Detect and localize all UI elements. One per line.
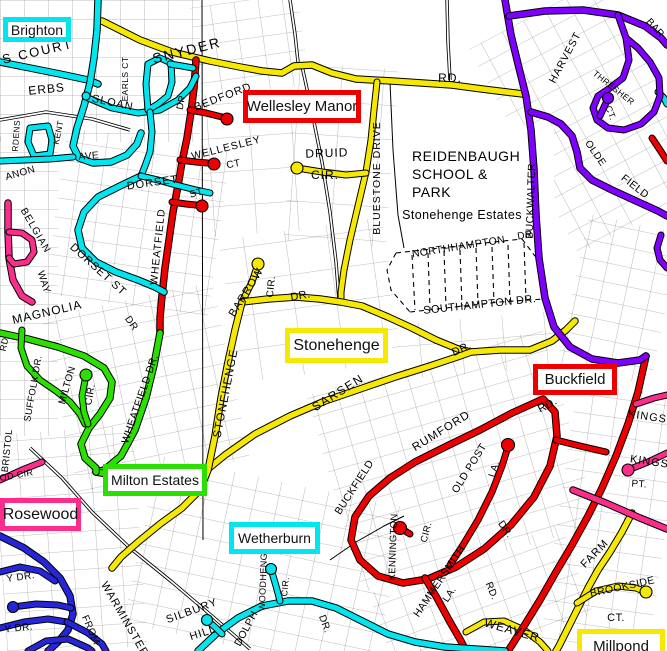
street-label: CT. (607, 612, 625, 624)
neighborhood-name: Brighton (11, 22, 63, 38)
neighborhood-name: Rosewood (3, 506, 79, 524)
unbuilt-road (524, 243, 526, 300)
neighborhood-label-rosewood: Rosewood (0, 498, 81, 531)
neighborhood-name: Millpond (593, 638, 649, 651)
neighborhood-label-brighton: Brighton (3, 17, 71, 42)
neighborhood-name: Wellesley Manor (247, 98, 358, 115)
unbuilt-road (508, 245, 510, 302)
street-label: PARK (412, 184, 451, 200)
unbuilt-road (460, 250, 462, 306)
neighborhood-name: Milton Estates (111, 472, 199, 488)
neighborhood-label-buckfield: Buckfield (533, 364, 617, 395)
street-label: SCHOOL & (412, 166, 488, 182)
cul-de-sac-dot (8, 602, 19, 613)
cul-de-sac-dot (221, 113, 233, 125)
cul-de-sac-dot (196, 200, 208, 212)
unbuilt-road (444, 251, 446, 307)
cul-de-sac-dot (80, 369, 92, 381)
neighborhood-name: Stonehenge (293, 337, 379, 355)
cul-de-sac-dot (82, 92, 90, 100)
cul-de-sac-dot (291, 162, 303, 174)
street-label: RD. (438, 71, 462, 85)
unbuilt-road (428, 253, 430, 309)
neighborhood-label-milton-estates: Milton Estates (103, 464, 207, 496)
street-label: Stonehenge Estates (402, 208, 522, 222)
neighborhood-label-stonehenge: Stonehenge (285, 328, 388, 363)
cul-de-sac-dot (622, 464, 634, 476)
unbuilt-road (492, 247, 494, 303)
street-label: REIDENBAUGH (412, 148, 520, 164)
cul-de-sac-dot (208, 158, 220, 170)
street-label: DRUID (305, 145, 348, 160)
cul-de-sac-dot (502, 439, 515, 452)
route-red (172, 202, 196, 205)
street-label: EARLS CT (120, 57, 130, 102)
street-label: SOUTHAMPTON DR. (423, 293, 537, 317)
map-canvas[interactable]: SNYDERRD.RS COURTERBSEARLS CTSLOANKENTRD… (0, 0, 667, 651)
neighborhood-label-millpond: Millpond (577, 629, 665, 651)
street-label: CIR. (311, 168, 339, 182)
cul-de-sac-dot (603, 93, 614, 104)
neighborhood-name: Buckfield (545, 371, 606, 388)
neighborhood-label-wetherburn: Wetherburn (229, 522, 320, 554)
street-label: AVE (78, 150, 99, 163)
street-label: KENNINGTON (387, 513, 400, 581)
street-label: PT. (631, 478, 647, 490)
unbuilt-road (412, 255, 415, 310)
street-label: CIR. (265, 275, 278, 298)
street-label: CIR. (279, 576, 291, 597)
neighborhood-name: Wetherburn (238, 530, 311, 546)
unbuilt-road (476, 248, 478, 304)
street-label: BLUESTONE DRIVE (371, 121, 383, 234)
neighborhood-label-wellesley-manor: Wellesley Manor (243, 90, 361, 123)
